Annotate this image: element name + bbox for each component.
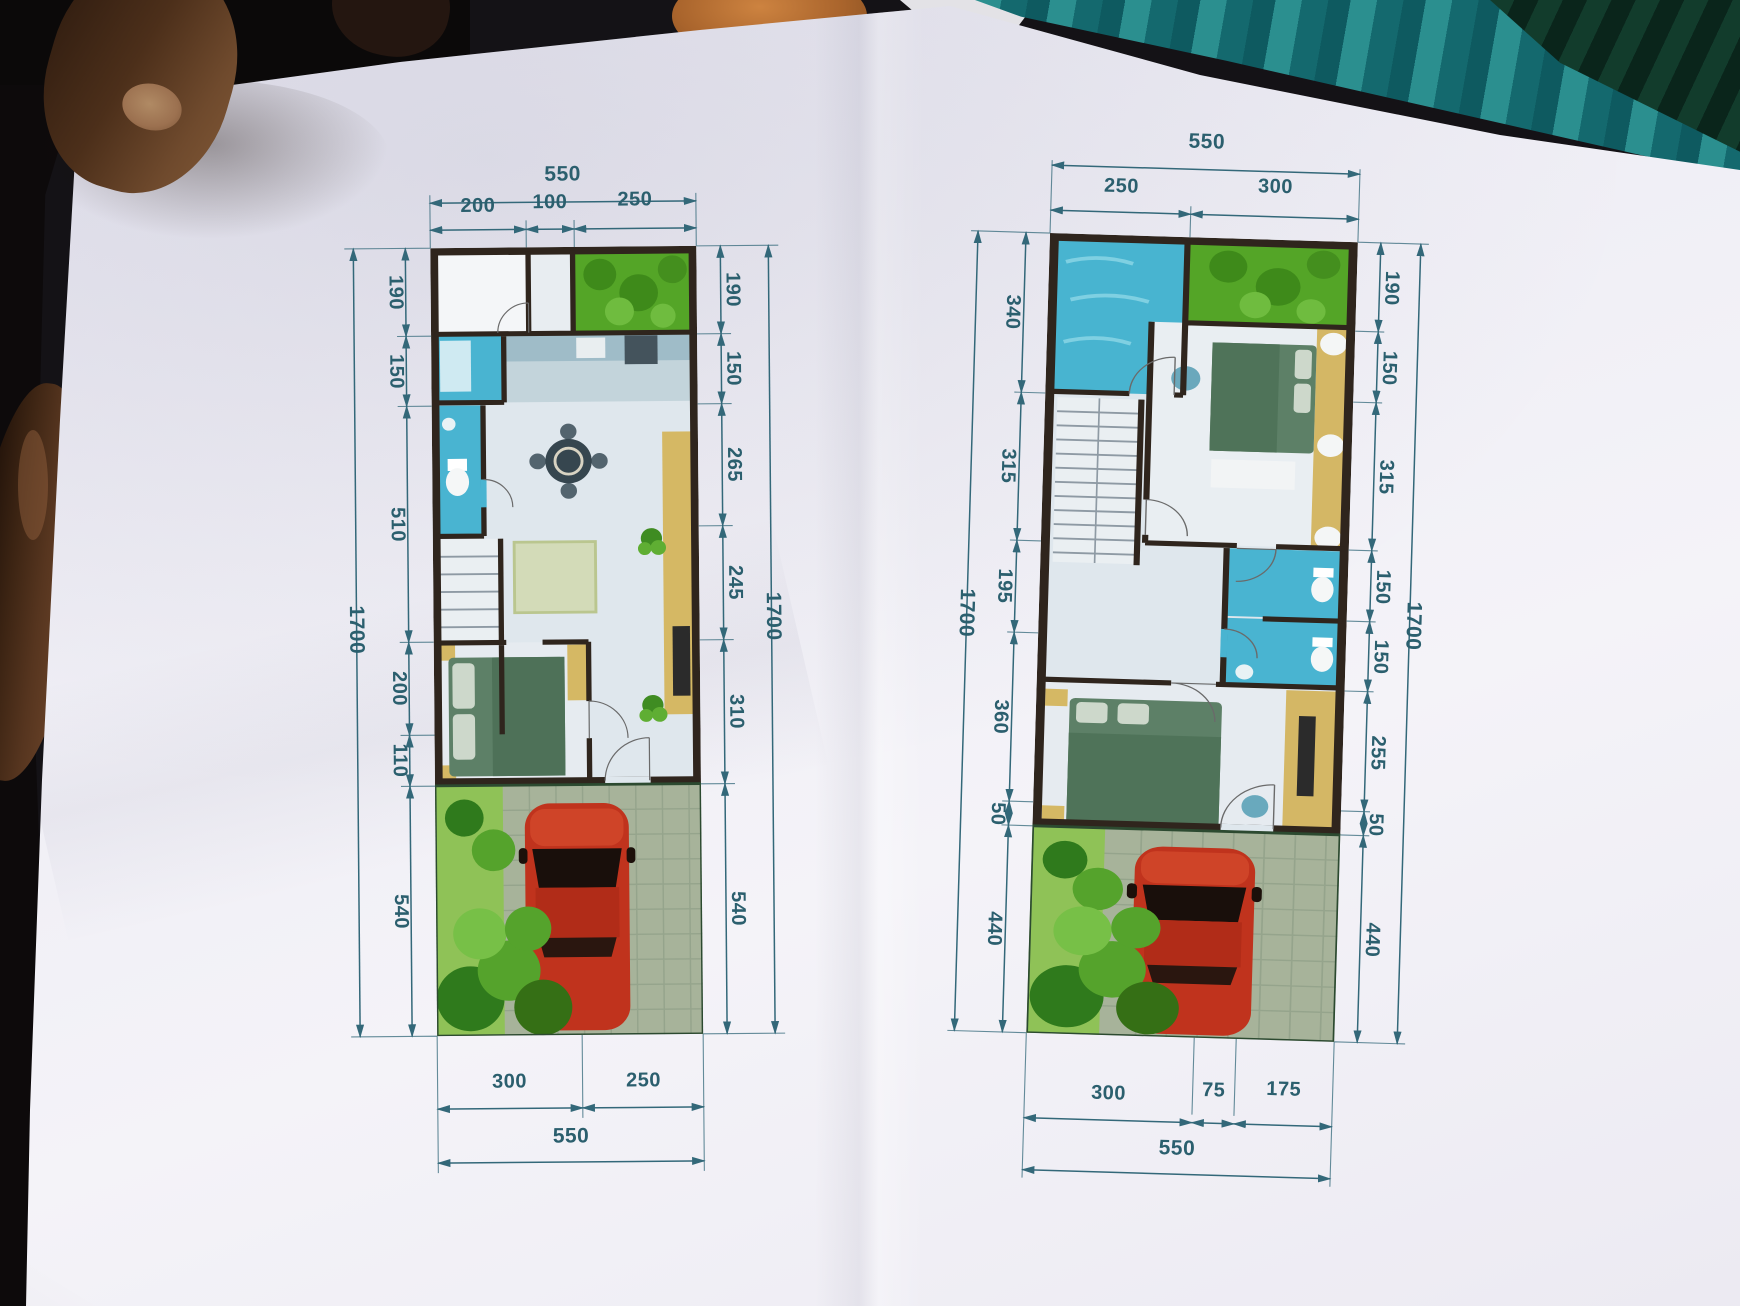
dim-label: 150 (1372, 569, 1393, 604)
dim-label: 200 (389, 671, 409, 706)
dim-label: 75 (1202, 1080, 1226, 1101)
garden-patch (573, 250, 694, 334)
upper-floor-drawing (1026, 233, 1358, 1042)
bathroom-1 (1225, 548, 1345, 619)
dim-label: 250 (1104, 176, 1139, 197)
photo-of-floor-plan-sheet: 550 200 100 250 300 250 550 190 150 510 … (0, 0, 1740, 1306)
bathroom (435, 334, 502, 403)
stairs (1053, 397, 1142, 564)
ground-floor-drawing (430, 246, 703, 1036)
thumb-highlight (18, 430, 48, 540)
house-interior (1032, 233, 1357, 836)
kitchen (504, 332, 694, 402)
dim-label: 1700 (763, 592, 784, 641)
dim-label: 315 (1375, 459, 1396, 494)
dim-label: 150 (1379, 350, 1400, 385)
dim-label: 100 (532, 192, 567, 212)
dim-label: 150 (386, 354, 406, 389)
dim-label: 150 (1370, 639, 1391, 674)
bedroom (438, 642, 590, 782)
dim-label: 315 (998, 448, 1019, 483)
dim-label: 340 (1002, 294, 1023, 329)
dim-label: 510 (388, 507, 408, 542)
garden-patch (1187, 241, 1353, 328)
dim-label: 550 (544, 163, 581, 184)
dim-label: 300 (1091, 1083, 1126, 1104)
dim-label: 540 (391, 894, 411, 929)
dim-label: 190 (1381, 270, 1402, 305)
dim-label: 360 (990, 699, 1011, 734)
bathroom-2 (1223, 618, 1343, 688)
dim-label: 550 (553, 1125, 590, 1146)
carport (435, 784, 703, 1037)
dim-label: 440 (1362, 922, 1383, 957)
master-bedroom (1037, 681, 1340, 832)
dim-label: 550 (1188, 131, 1225, 153)
living-rug (514, 542, 596, 613)
dim-label: 1700 (956, 588, 978, 637)
bedroom-2 (1145, 322, 1351, 550)
dim-label: 190 (386, 275, 406, 310)
house-interior (430, 246, 701, 787)
ground-floor-plan: 550 200 100 250 300 250 550 190 150 510 … (325, 126, 814, 1220)
dim-label: 250 (617, 189, 652, 209)
dim-label: 1700 (346, 605, 367, 654)
dim-label: 245 (725, 565, 745, 600)
dim-label: 300 (1258, 176, 1293, 197)
dim-label: 540 (728, 891, 748, 926)
dim-label: 50 (987, 802, 1008, 826)
dim-label: 550 (1158, 1137, 1195, 1159)
dim-label: 250 (626, 1070, 661, 1090)
dim-label: 310 (726, 694, 746, 729)
dim-label: 265 (724, 447, 744, 482)
upper-floor-plan: 550 250 300 300 75 175 550 340 315 195 3… (914, 107, 1507, 1243)
dim-label: 440 (984, 911, 1005, 946)
dim-label: 50 (1365, 813, 1386, 837)
dim-label: 175 (1266, 1079, 1301, 1100)
dim-label: 200 (460, 196, 495, 216)
dim-label: 110 (390, 744, 410, 778)
dim-label: 255 (1367, 735, 1388, 770)
carport (1026, 826, 1340, 1042)
dim-label: 190 (723, 272, 743, 307)
toilet-room (436, 405, 485, 536)
dim-label: 195 (994, 568, 1015, 603)
dim-label: 300 (492, 1071, 527, 1091)
dim-label: 150 (723, 351, 743, 386)
paper-crease (815, 0, 925, 1306)
dim-label: 1700 (1402, 601, 1424, 650)
